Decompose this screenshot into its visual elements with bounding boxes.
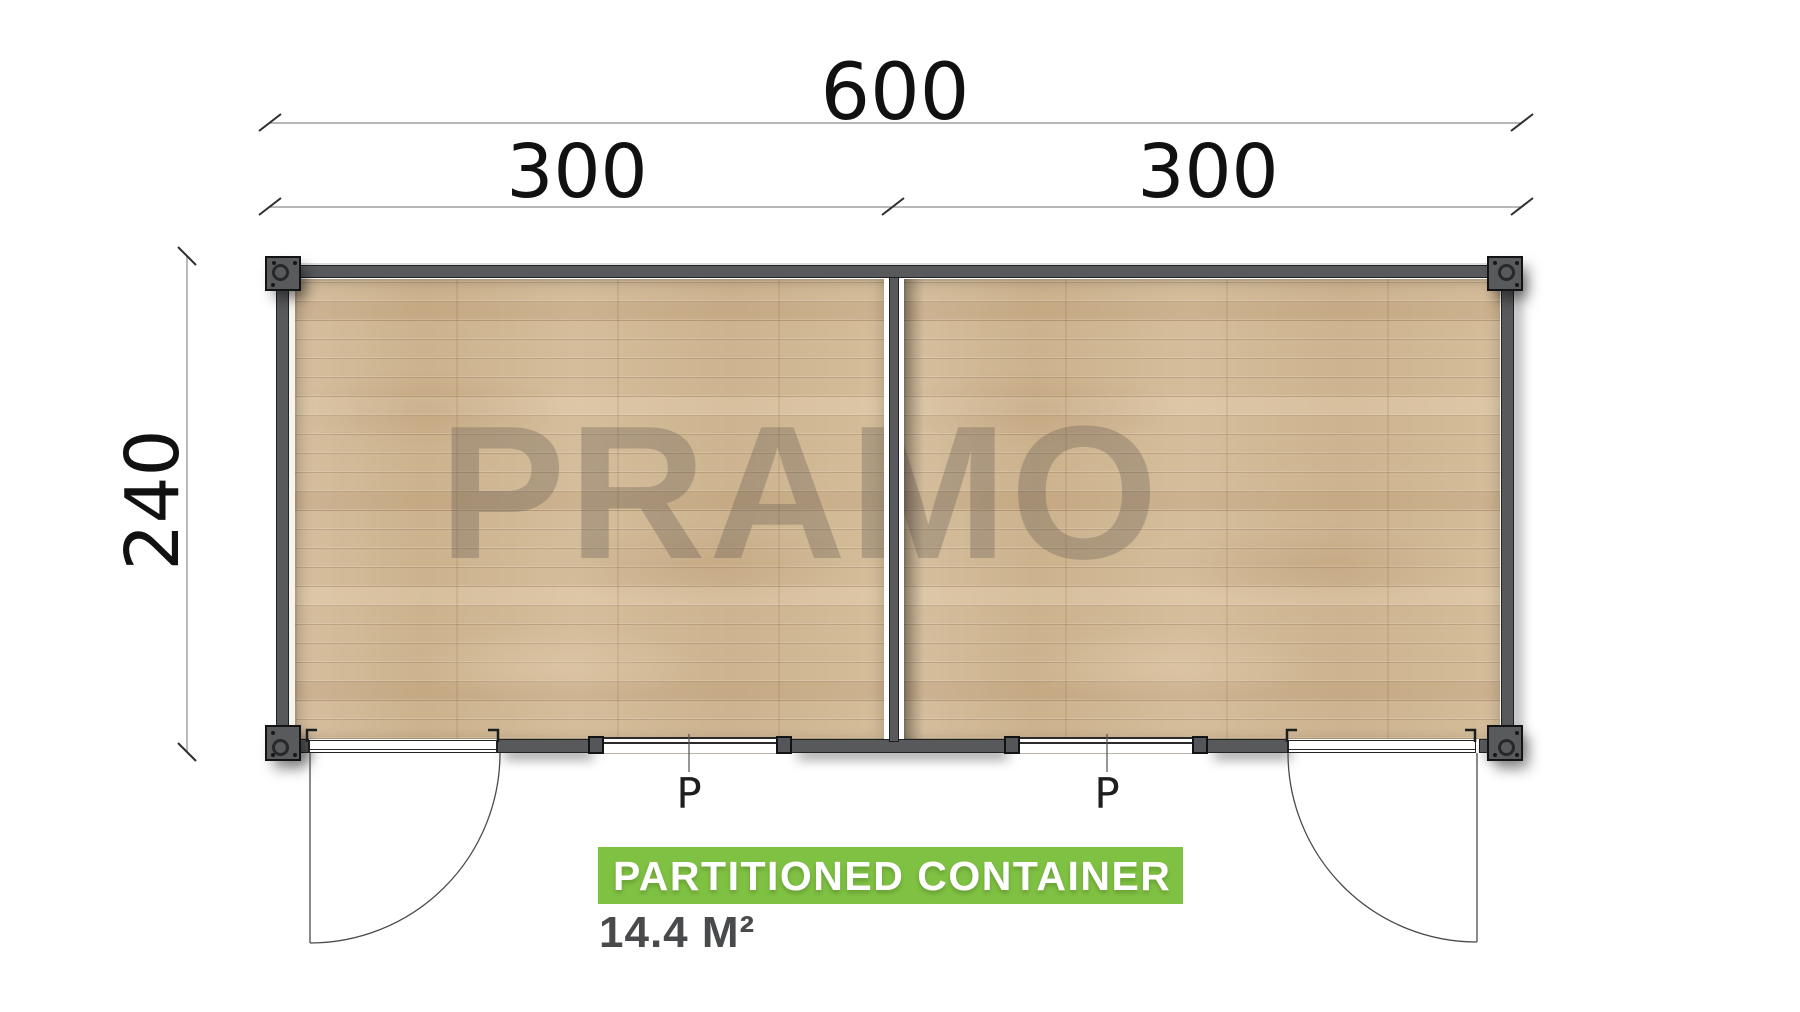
- left-wall-floor-gap: [289, 279, 295, 739]
- door-swing-left: [310, 753, 500, 943]
- area-value: 14.4 M²: [599, 908, 755, 958]
- window-label-right: P: [1067, 771, 1147, 817]
- window-label-left: P: [649, 771, 729, 817]
- watermark-text: PRAMO: [420, 370, 1180, 615]
- bottom-wall-segment-4: [1207, 739, 1288, 753]
- door-swing-right: [1288, 753, 1477, 942]
- partition-shadow: [904, 279, 924, 739]
- dimension-depth: 240: [114, 350, 192, 650]
- window-frame-icon: [1192, 736, 1208, 754]
- left-wall: [276, 270, 289, 745]
- plan-title: PARTITIONED CONTAINER: [598, 847, 1183, 905]
- corner-block-top-left: [265, 256, 301, 291]
- right-wall: [1501, 270, 1514, 745]
- window-left: [604, 737, 776, 754]
- partition-wall: [889, 277, 899, 742]
- dimension-right-width: 300: [1058, 135, 1358, 209]
- dimension-total-width: 600: [745, 54, 1045, 132]
- title-banner: PARTITIONED CONTAINER: [598, 847, 1183, 904]
- dimension-left-width: 300: [427, 135, 727, 209]
- floor-plan-canvas: PRAMO: [0, 0, 1800, 1012]
- window-frame-icon: [588, 736, 604, 754]
- corner-block-bottom-right: [1487, 725, 1523, 761]
- window-frame-icon: [1004, 736, 1020, 754]
- window-frame-icon: [776, 736, 792, 754]
- corner-block-bottom-left: [265, 725, 301, 761]
- window-right: [1020, 737, 1192, 754]
- door-leaf-right: [1288, 740, 1476, 753]
- bottom-wall-segment-2: [497, 739, 590, 753]
- door-leaf-left: [309, 740, 497, 753]
- corner-block-top-right: [1487, 256, 1523, 291]
